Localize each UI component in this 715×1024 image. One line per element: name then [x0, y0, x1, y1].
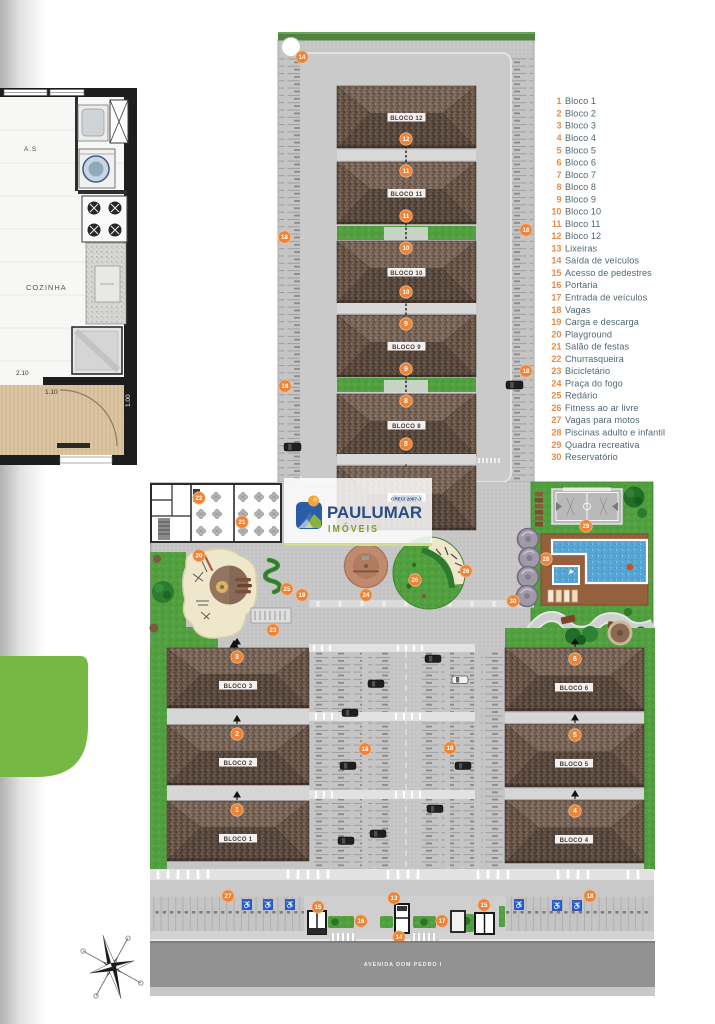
svg-text:♿: ♿	[572, 901, 582, 911]
svg-text:29: 29	[551, 440, 561, 450]
svg-text:24: 24	[551, 378, 562, 388]
svg-text:Bloco 6: Bloco 6	[565, 158, 596, 168]
svg-text:BLOCO 9: BLOCO 9	[392, 345, 421, 351]
svg-text:Carga e descarga: Carga e descarga	[565, 317, 640, 327]
svg-text:Acesso de pedestres: Acesso de pedestres	[565, 268, 652, 278]
svg-text:Quadra recreativa: Quadra recreativa	[565, 440, 640, 450]
svg-text:8: 8	[404, 441, 408, 448]
svg-text:BLOCO 8: BLOCO 8	[392, 424, 421, 430]
svg-text:17: 17	[439, 918, 446, 925]
svg-text:5: 5	[573, 732, 577, 739]
svg-text:BLOCO 6: BLOCO 6	[560, 686, 589, 692]
svg-text:1.00: 1.00	[125, 394, 132, 407]
svg-text:BLOCO 3: BLOCO 3	[224, 684, 253, 690]
svg-text:Bloco 7: Bloco 7	[565, 170, 596, 180]
svg-text:BLOCO 2: BLOCO 2	[224, 761, 253, 767]
svg-text:Bloco 12: Bloco 12	[565, 231, 601, 241]
svg-text:13: 13	[551, 243, 561, 253]
svg-text:♿: ♿	[552, 901, 562, 911]
svg-text:Bloco 4: Bloco 4	[565, 133, 596, 143]
svg-text:21: 21	[551, 342, 561, 352]
svg-text:16: 16	[358, 918, 365, 925]
svg-text:14: 14	[396, 934, 403, 941]
svg-text:10: 10	[403, 289, 410, 296]
svg-text:23: 23	[270, 627, 277, 634]
svg-text:2: 2	[235, 731, 239, 738]
svg-text:12: 12	[551, 231, 561, 241]
svg-text:AVENIDA DOM PEDRO I: AVENIDA DOM PEDRO I	[364, 962, 443, 968]
svg-text:26: 26	[551, 403, 561, 413]
svg-text:27: 27	[225, 893, 232, 900]
svg-text:12: 12	[403, 136, 410, 143]
svg-text:3: 3	[556, 121, 561, 131]
svg-text:11: 11	[552, 219, 562, 229]
svg-text:18: 18	[282, 383, 289, 390]
svg-text:17: 17	[551, 293, 561, 303]
svg-text:Praça do fogo: Praça do fogo	[565, 378, 623, 388]
svg-text:BLOCO 12: BLOCO 12	[390, 116, 423, 122]
svg-text:Churrasqueira: Churrasqueira	[565, 354, 625, 364]
svg-text:21: 21	[239, 519, 246, 526]
svg-text:15: 15	[551, 268, 561, 278]
svg-text:10: 10	[403, 245, 410, 252]
svg-text:7: 7	[556, 170, 561, 180]
svg-text:4: 4	[573, 808, 577, 815]
svg-text:Bloco 5: Bloco 5	[565, 145, 596, 155]
svg-text:2.10: 2.10	[16, 370, 29, 377]
svg-text:15: 15	[481, 902, 488, 909]
svg-text:9: 9	[404, 321, 408, 328]
svg-text:CRECI 2067-J: CRECI 2067-J	[391, 497, 421, 502]
svg-text:Playground: Playground	[565, 329, 612, 339]
svg-text:18: 18	[281, 234, 288, 241]
svg-text:BLOCO 10: BLOCO 10	[390, 271, 423, 277]
svg-text:23: 23	[551, 366, 561, 376]
svg-text:Entrada de veículos: Entrada de veículos	[565, 293, 648, 303]
svg-text:18: 18	[551, 305, 561, 315]
svg-text:Bloco 9: Bloco 9	[565, 194, 596, 204]
svg-text:1.10: 1.10	[45, 389, 58, 396]
svg-text:Salão de festas: Salão de festas	[565, 342, 630, 352]
svg-text:♿: ♿	[263, 900, 273, 910]
svg-text:26: 26	[412, 577, 419, 584]
svg-text:BLOCO 11: BLOCO 11	[390, 192, 422, 198]
svg-text:Piscinas adulto e infantil: Piscinas adulto e infantil	[565, 428, 665, 438]
svg-text:Bloco 3: Bloco 3	[565, 121, 596, 131]
svg-text:Bloco 11: Bloco 11	[565, 219, 601, 229]
svg-text:29: 29	[583, 523, 590, 530]
svg-text:Reservatório: Reservatório	[565, 452, 618, 462]
svg-text:18: 18	[587, 893, 594, 900]
svg-text:♿: ♿	[285, 900, 295, 910]
svg-text:Bloco 8: Bloco 8	[565, 182, 596, 192]
svg-text:1: 1	[556, 96, 561, 106]
svg-text:20: 20	[196, 553, 203, 560]
svg-text:30: 30	[510, 598, 517, 605]
svg-text:14: 14	[299, 54, 306, 61]
svg-text:COZINHA: COZINHA	[26, 283, 67, 292]
svg-text:25: 25	[284, 586, 291, 593]
svg-text:Lixeiras: Lixeiras	[565, 243, 597, 253]
svg-text:30: 30	[551, 452, 561, 462]
svg-text:BLOCO 4: BLOCO 4	[560, 838, 589, 844]
svg-text:Fitness ao ar livre: Fitness ao ar livre	[565, 403, 639, 413]
svg-text:11: 11	[403, 213, 410, 220]
svg-text:IMÓVEIS: IMÓVEIS	[328, 522, 379, 535]
svg-text:Bicicletário: Bicicletário	[565, 366, 610, 376]
svg-text:2: 2	[556, 109, 561, 119]
svg-text:28: 28	[551, 428, 561, 438]
svg-text:28: 28	[543, 556, 550, 563]
svg-text:13: 13	[391, 895, 398, 902]
svg-text:5: 5	[556, 145, 561, 155]
svg-text:10: 10	[551, 207, 561, 217]
svg-text:18: 18	[523, 368, 530, 375]
svg-text:Vagas: Vagas	[565, 305, 591, 315]
svg-text:6: 6	[556, 158, 561, 168]
svg-text:Portaria: Portaria	[565, 280, 598, 290]
svg-text:3: 3	[235, 654, 239, 661]
svg-text:22: 22	[196, 495, 203, 502]
svg-text:24: 24	[363, 592, 370, 599]
svg-text:16: 16	[551, 280, 561, 290]
svg-text:19: 19	[551, 317, 561, 327]
svg-text:18: 18	[523, 227, 530, 234]
svg-text:Redário: Redário	[565, 391, 598, 401]
svg-text:18: 18	[447, 745, 454, 752]
svg-text:9: 9	[404, 366, 408, 373]
svg-text:19: 19	[299, 592, 306, 599]
svg-text:27: 27	[551, 415, 561, 425]
svg-text:8: 8	[556, 182, 561, 192]
svg-text:BLOCO 5: BLOCO 5	[560, 762, 589, 768]
svg-text:Vagas para motos: Vagas para motos	[565, 415, 640, 425]
svg-text:25: 25	[551, 391, 561, 401]
svg-text:15: 15	[315, 904, 322, 911]
svg-text:Bloco 2: Bloco 2	[565, 109, 596, 119]
svg-text:20: 20	[551, 329, 561, 339]
svg-text:18: 18	[362, 746, 369, 753]
svg-text:8: 8	[404, 398, 408, 405]
svg-text:22: 22	[551, 354, 561, 364]
svg-text:Saída de veículos: Saída de veículos	[565, 256, 639, 266]
svg-text:6: 6	[573, 656, 577, 663]
svg-text:♿: ♿	[242, 900, 252, 910]
svg-text:Bloco 1: Bloco 1	[565, 96, 596, 106]
svg-text:♿: ♿	[514, 900, 524, 910]
svg-text:1: 1	[235, 807, 239, 814]
svg-text:11: 11	[403, 168, 410, 175]
svg-text:PAULUMAR: PAULUMAR	[327, 504, 422, 522]
svg-text:9: 9	[556, 194, 561, 204]
svg-text:Bloco 10: Bloco 10	[565, 207, 601, 217]
svg-text:BLOCO 1: BLOCO 1	[224, 837, 253, 843]
svg-text:14: 14	[551, 256, 562, 266]
svg-text:A.S: A.S	[24, 146, 37, 153]
svg-text:26: 26	[463, 568, 470, 575]
